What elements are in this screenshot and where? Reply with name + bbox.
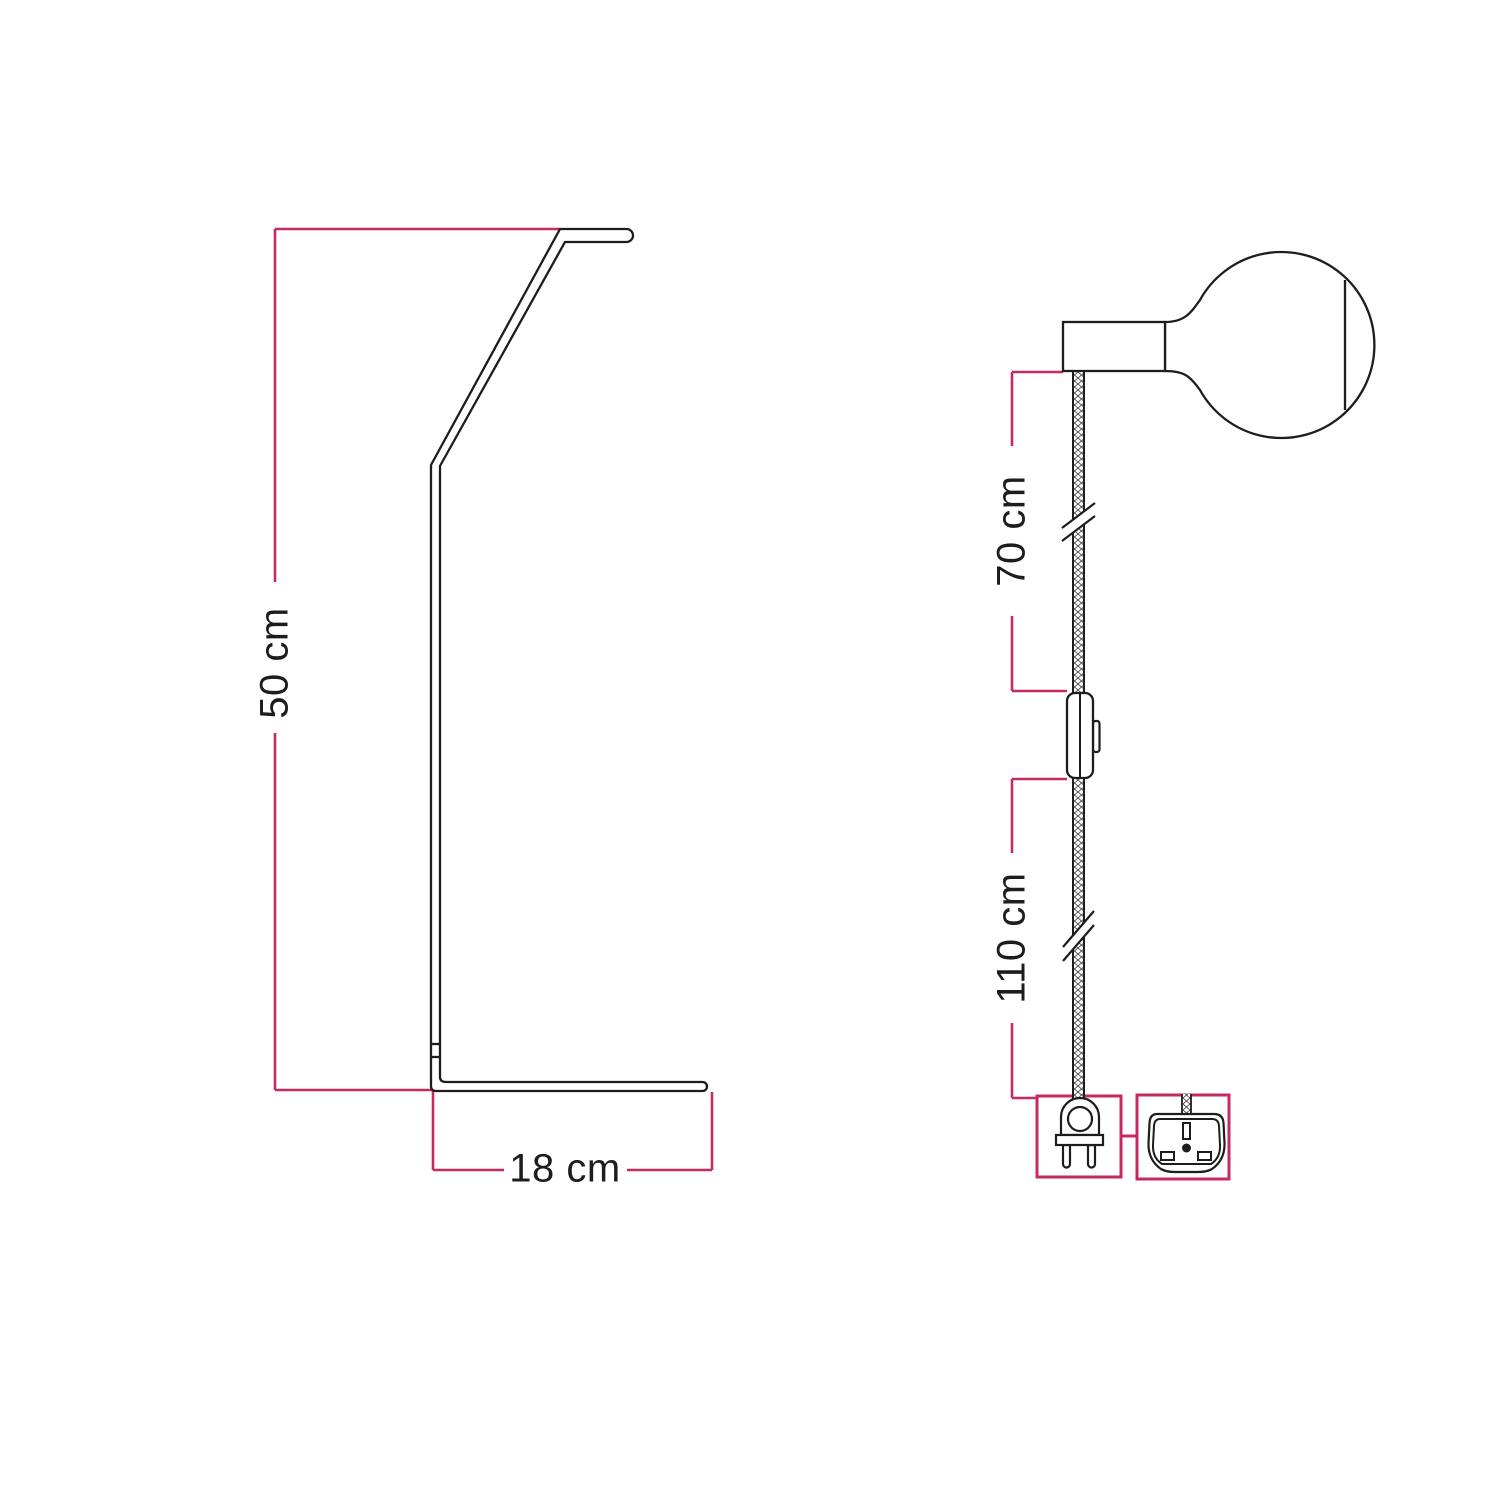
- lamp-socket-icon: [1063, 322, 1165, 371]
- eu-two-pin-plug-icon: [1056, 1098, 1103, 1168]
- uk-plug-center-dot: [1182, 1144, 1191, 1153]
- stand-profile-outline: [431, 229, 707, 1091]
- inline-switch-icon: [1067, 693, 1100, 778]
- switch-to-plug-label: 110 cm: [990, 872, 1035, 1003]
- base-depth-label: 18 cm: [509, 1147, 620, 1192]
- socket-to-switch-label: 70 cm: [990, 475, 1035, 586]
- uk-three-pin-plug-icon: [1148, 1094, 1224, 1172]
- stand-height-label: 50 cm: [253, 607, 298, 718]
- diagram-artwork: [0, 0, 1500, 1500]
- height-dimension-line: [275, 229, 560, 1090]
- globe-bulb-icon: [1165, 252, 1374, 438]
- dimension-diagram: 50 cm 18 cm 70 cm 110 cm: [0, 0, 1500, 1500]
